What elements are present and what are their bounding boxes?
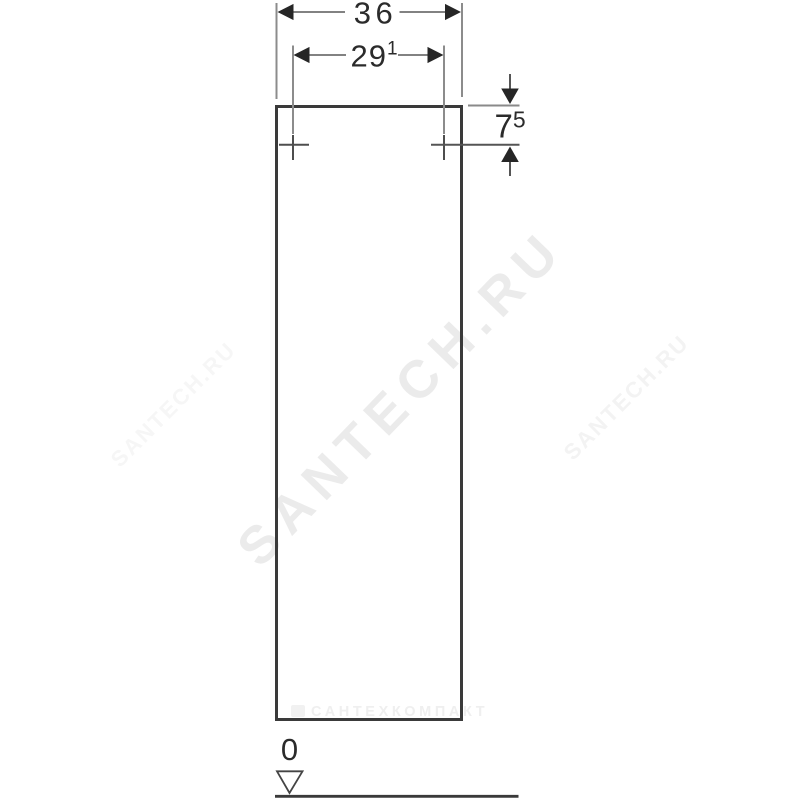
svg-text:SANTECH.RU: SANTECH.RU	[559, 330, 694, 465]
svg-text:75: 75	[495, 107, 526, 145]
svg-text:291: 291	[351, 39, 399, 74]
svg-text:0: 0	[281, 732, 298, 767]
svg-text:36: 36	[354, 0, 397, 31]
svg-text:SANTECH.RU: SANTECH.RU	[226, 218, 576, 577]
svg-text:SANTECH.RU: SANTECH.RU	[106, 337, 241, 472]
